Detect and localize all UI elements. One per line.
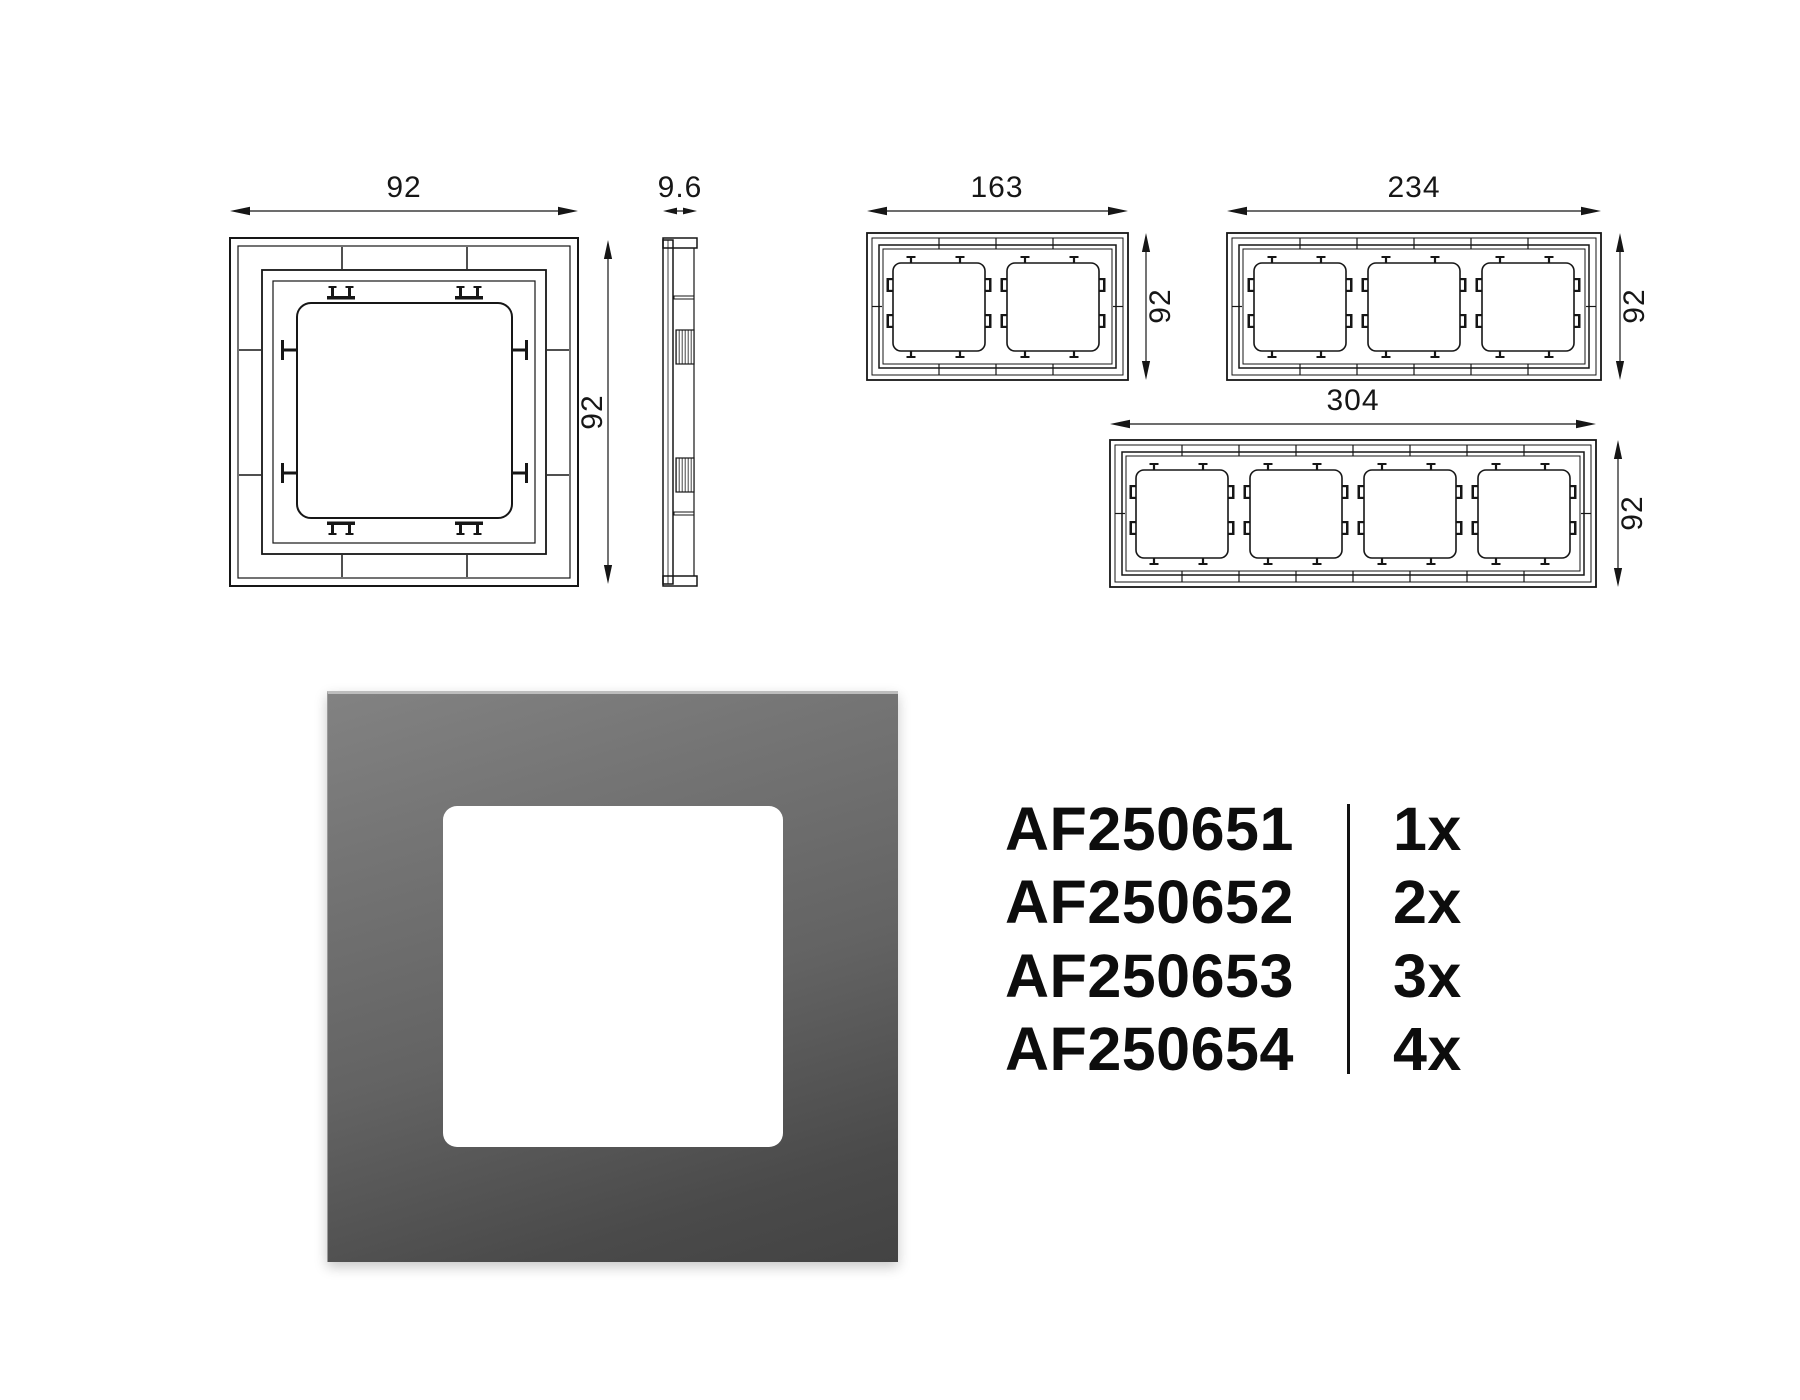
product-code-table: AF250651 1x AF250652 2x AF250653 3x AF25… xyxy=(1005,792,1545,1088)
product-code: AF250654 xyxy=(1005,1014,1347,1084)
dim-label-gang2-height: 92 xyxy=(1144,288,1177,323)
datasheet-page: 92 9.6 92 163 92 234 92 304 92 AF250651 … xyxy=(0,0,1800,1400)
three-gang-frame-view xyxy=(1227,233,1601,380)
product-photo-frame xyxy=(327,691,898,1262)
single-frame-front-view xyxy=(230,238,578,586)
table-row: AF250652 2x xyxy=(1005,866,1545,940)
dim-label-depth: 9.6 xyxy=(658,171,703,204)
product-code: AF250652 xyxy=(1005,867,1347,937)
dim-label-gang4-height: 92 xyxy=(1616,495,1649,530)
gang-count: 2x xyxy=(1393,867,1462,937)
table-divider-line xyxy=(1347,804,1350,1074)
gang-count: 1x xyxy=(1393,794,1462,864)
dim-label-single-height: 92 xyxy=(576,394,609,429)
gang-count: 4x xyxy=(1393,1014,1462,1084)
technical-drawings: 92 9.6 92 163 92 234 92 304 92 xyxy=(0,0,1800,1400)
dim-label-gang3-width: 234 xyxy=(1387,171,1440,204)
dim-label-gang3-height: 92 xyxy=(1618,288,1651,323)
table-row: AF250654 4x xyxy=(1005,1013,1545,1087)
dim-label-single-width: 92 xyxy=(386,171,421,204)
gang-count: 3x xyxy=(1393,941,1462,1011)
product-code: AF250653 xyxy=(1005,941,1347,1011)
dim-label-gang2-width: 163 xyxy=(970,171,1023,204)
product-code: AF250651 xyxy=(1005,794,1347,864)
table-row: AF250651 1x xyxy=(1005,792,1545,866)
table-row: AF250653 3x xyxy=(1005,939,1545,1013)
four-gang-frame-view xyxy=(1110,440,1596,587)
dimension-lines xyxy=(249,211,1620,569)
dimension-arrowheads xyxy=(230,207,1624,587)
dim-label-gang4-width: 304 xyxy=(1326,384,1379,417)
two-gang-frame-view xyxy=(867,233,1128,380)
product-photo-window xyxy=(443,806,783,1147)
single-frame-side-view xyxy=(663,238,697,586)
